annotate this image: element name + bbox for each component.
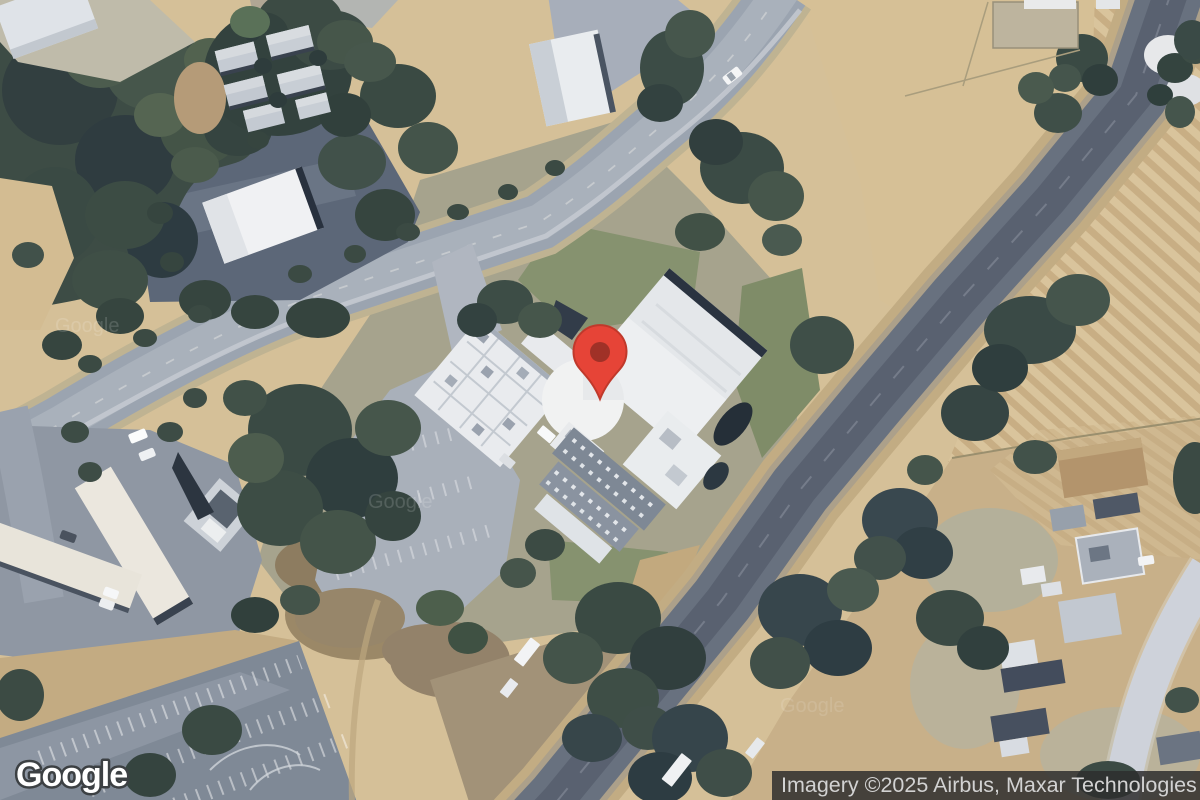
- svg-text:Imagery ©2025 Airbus, Maxar Te: Imagery ©2025 Airbus, Maxar Technologies: [781, 773, 1197, 797]
- svg-text:Google: Google: [368, 491, 433, 513]
- svg-text:Google: Google: [55, 315, 120, 337]
- svg-text:Google: Google: [780, 695, 845, 717]
- svg-text:Google: Google: [16, 756, 127, 794]
